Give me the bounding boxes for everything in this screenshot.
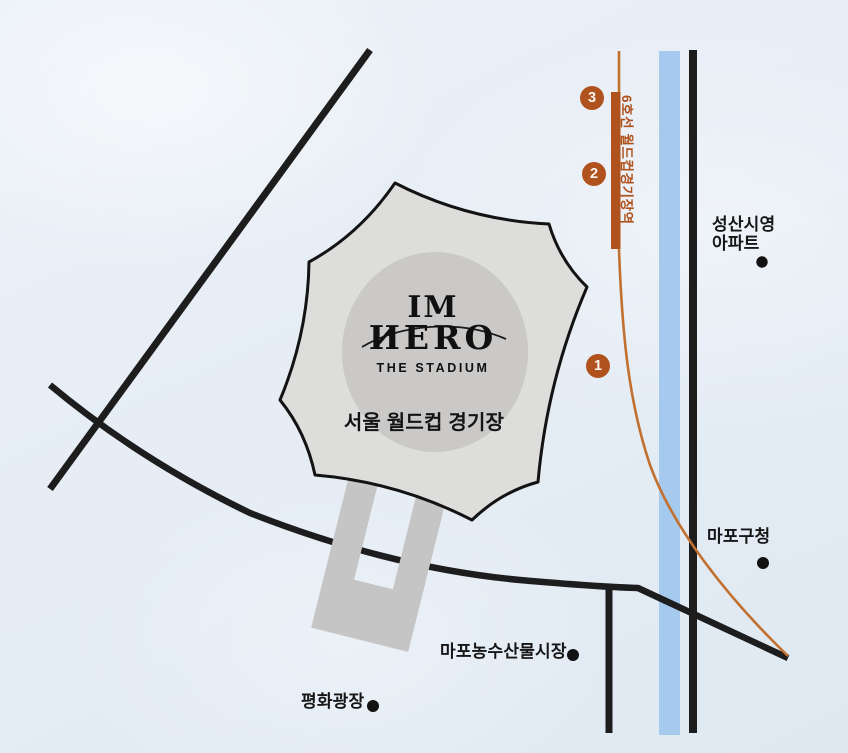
stadium-logo-subtitle: THE STADIUM: [330, 361, 536, 375]
poi-label-mapo-market: 마포농수산물시장: [440, 642, 567, 661]
poi-dot-peace-plaza: [367, 700, 379, 712]
stadium-name-label: 서울 월드컵 경기장: [304, 414, 544, 433]
poi-dot-mapo-gu-office: [757, 557, 769, 569]
poi-label-seongsan-line2: 아파트: [712, 234, 775, 253]
poi-label-seongsan-apartment: 성산시영 아파트: [712, 215, 775, 253]
poi-label-mapo-gu-office: 마포구청: [707, 527, 770, 546]
poi-label-seongsan-line1: 성산시영: [712, 215, 775, 234]
poi-label-peace-plaza: 평화광장: [301, 692, 364, 711]
water-stream: [659, 51, 680, 735]
stadium-map: IM ИERO THE STADIUM 서울 월드컵 경기장 6호선 월드컵경기…: [0, 0, 848, 753]
poi-dot-seongsan-apartment: [756, 256, 767, 267]
stadium-logo-hero: ИERO: [330, 320, 536, 356]
subway-station-label: 6호선 월드컵경기장역: [618, 95, 638, 225]
subway-exit-3-badge: 3: [580, 86, 604, 110]
map-canvas: [0, 0, 848, 753]
subway-exit-1-badge: 1: [586, 354, 610, 378]
subway-exit-2-badge: 2: [582, 162, 606, 186]
poi-dot-mapo-market: [567, 649, 579, 661]
